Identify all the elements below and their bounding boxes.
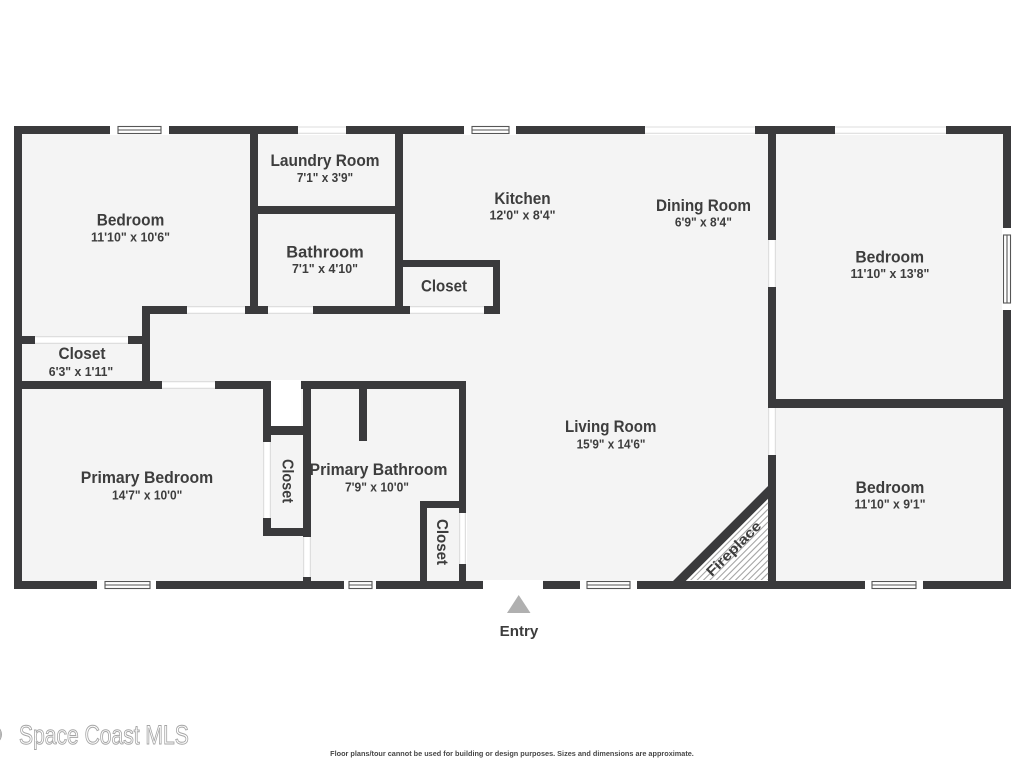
svg-text:7'1" x 4'10": 7'1" x 4'10": [292, 261, 358, 276]
svg-text:6'9" x 8'4": 6'9" x 8'4": [675, 215, 732, 230]
svg-text:Closet: Closet: [433, 519, 450, 566]
svg-text:Laundry Room: Laundry Room: [271, 151, 380, 170]
svg-text:Entry: Entry: [500, 623, 539, 640]
svg-text:Living Room: Living Room: [565, 417, 656, 436]
svg-text:Closet: Closet: [59, 344, 106, 363]
svg-text:Closet: Closet: [421, 277, 467, 296]
svg-text:Closet: Closet: [279, 459, 296, 504]
svg-text:11'10" x 10'6": 11'10" x 10'6": [91, 230, 170, 245]
svg-text:Primary Bedroom: Primary Bedroom: [81, 468, 213, 487]
svg-text:11'10" x 13'8": 11'10" x 13'8": [850, 266, 929, 281]
svg-text:Dining Room: Dining Room: [656, 196, 751, 215]
svg-text:6'3" x 1'11": 6'3" x 1'11": [49, 364, 114, 379]
svg-text:Bedroom: Bedroom: [856, 478, 925, 497]
svg-text:Bedroom: Bedroom: [855, 247, 924, 266]
svg-text:Bedroom: Bedroom: [97, 211, 165, 230]
svg-text:7'1" x 3'9": 7'1" x 3'9": [297, 170, 353, 185]
svg-text:12'0" x 8'4": 12'0" x 8'4": [490, 208, 556, 223]
svg-text:Primary Bathroom: Primary Bathroom: [310, 460, 448, 479]
svg-text:11'10" x 9'1": 11'10" x 9'1": [854, 496, 925, 511]
svg-text:14'7" x 10'0": 14'7" x 10'0": [112, 488, 182, 503]
svg-text:15'9" x 14'6": 15'9" x 14'6": [577, 437, 646, 452]
svg-text:Bathroom: Bathroom: [286, 243, 363, 262]
svg-text:Kitchen: Kitchen: [494, 189, 550, 208]
svg-text:7'9" x 10'0": 7'9" x 10'0": [345, 480, 409, 495]
